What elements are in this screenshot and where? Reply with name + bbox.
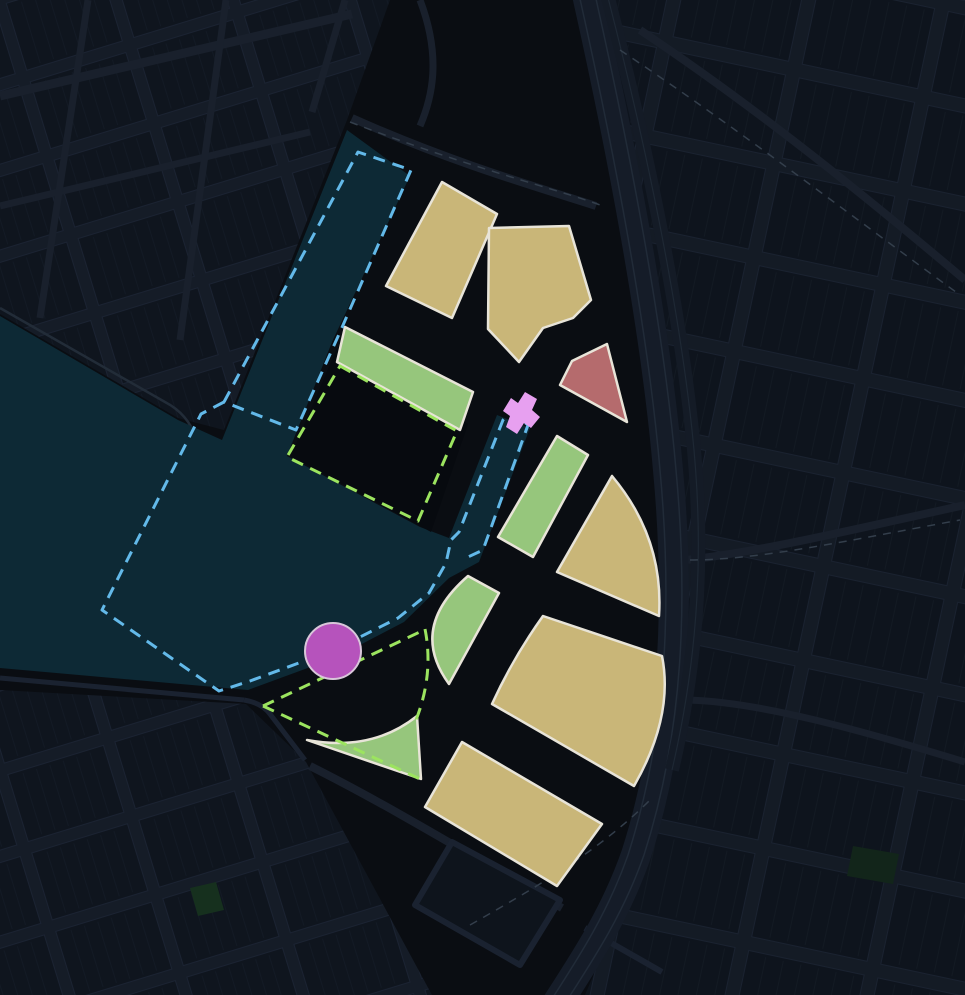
map-svg bbox=[0, 0, 965, 995]
magenta-circle-marker bbox=[305, 623, 361, 679]
map-viewport[interactable] bbox=[0, 0, 965, 995]
